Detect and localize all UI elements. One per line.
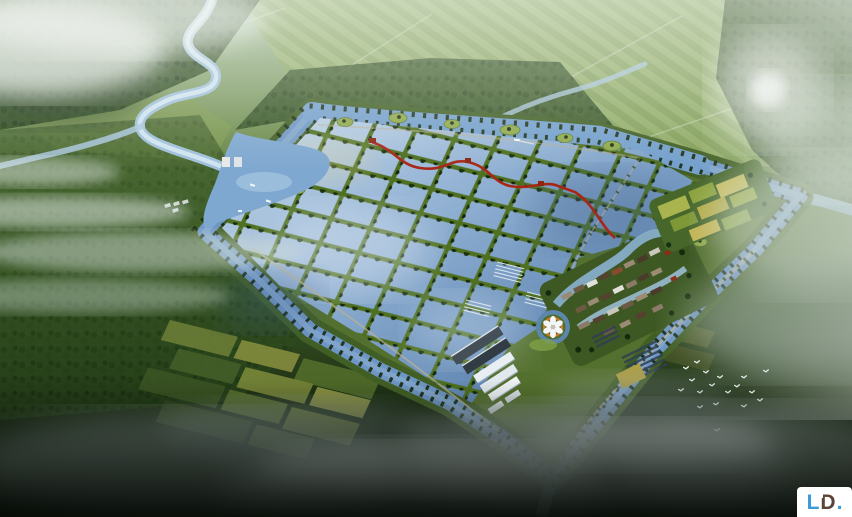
logo-badge: L D .	[797, 487, 852, 517]
lotus-lawn	[529, 339, 557, 351]
aerial-masterplan-render: L D .	[0, 0, 852, 517]
logo-period: .	[837, 492, 843, 513]
logo-letter-d: D	[820, 492, 835, 513]
bottom-vignette	[0, 380, 852, 517]
logo-letter-l: L	[807, 492, 820, 513]
rendering-canvas	[0, 0, 852, 517]
